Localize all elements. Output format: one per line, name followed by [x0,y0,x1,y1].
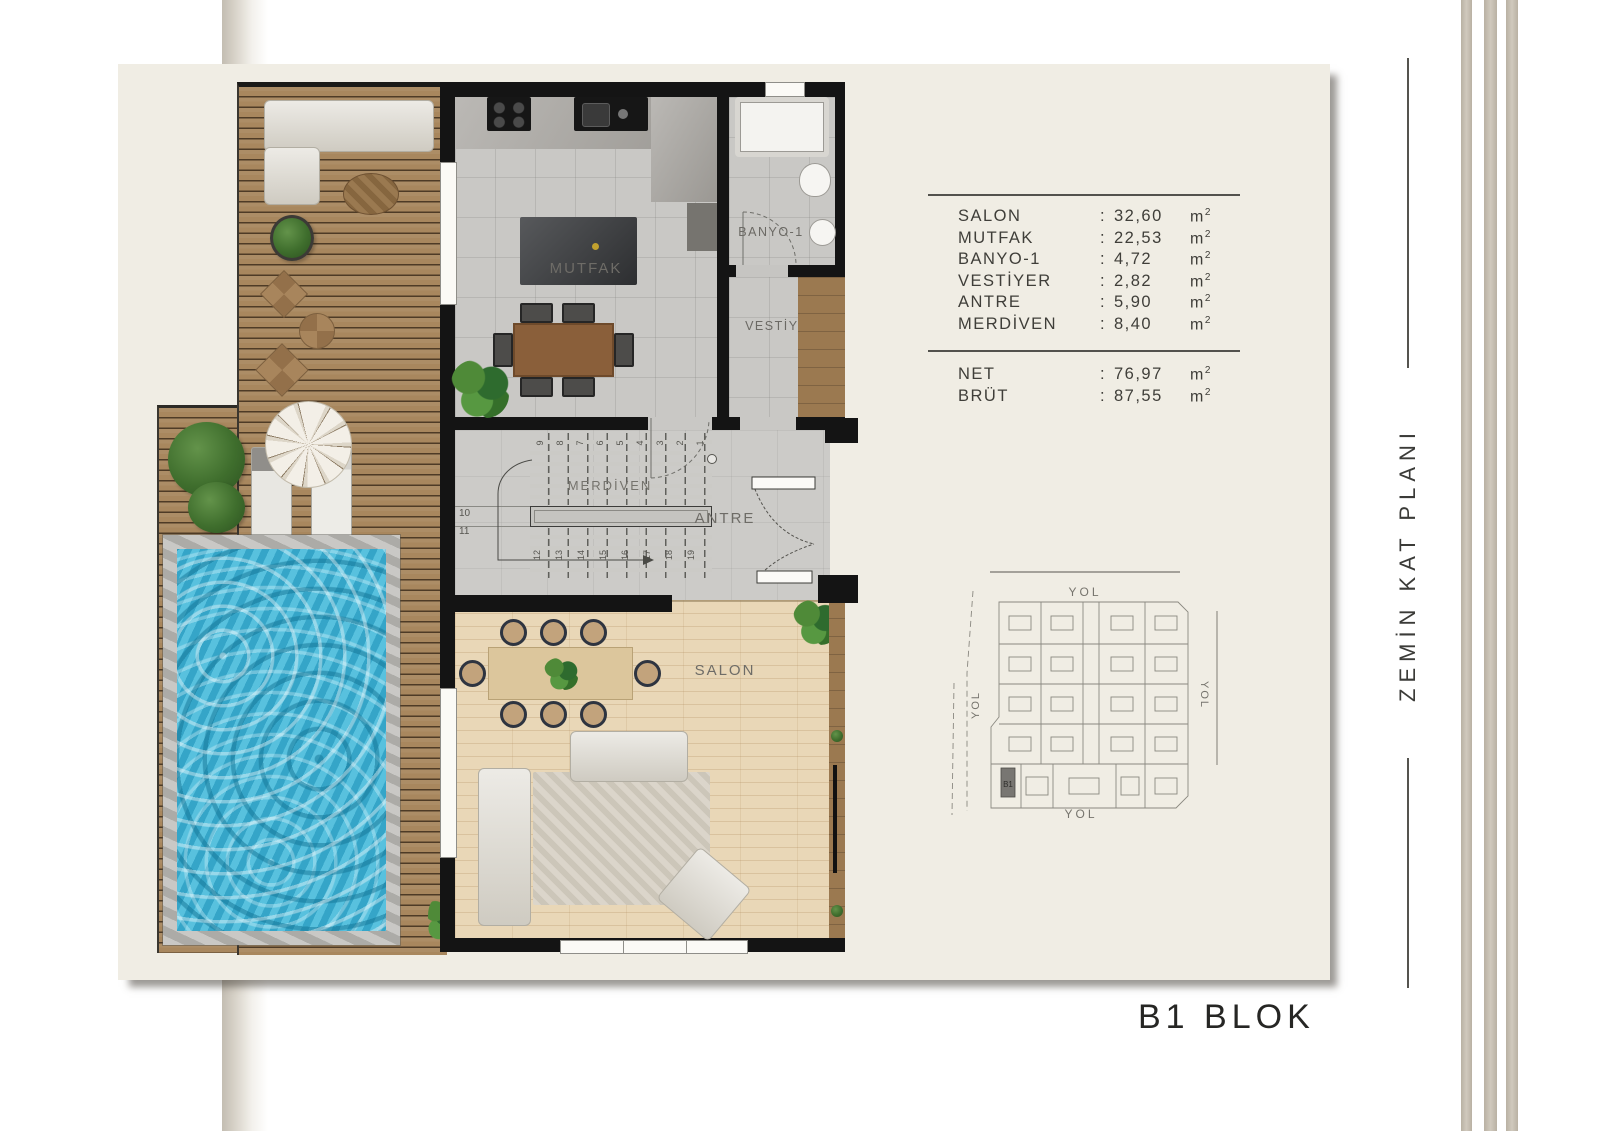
site-boundary [991,602,1188,808]
schedule-row: MUTFAK:22,53m2 [928,229,1240,251]
total-name: NET [928,365,1100,384]
road-dashed [952,683,954,815]
schedule-total-row: NET:76,97m2 [928,365,1240,387]
schedule-total-row: BRÜT:87,55m2 [928,387,1240,409]
room-name: VESTİYER [928,272,1100,291]
room-name: MUTFAK [928,229,1100,248]
schedule-rows: SALON:32,60m2 MUTFAK:22,53m2 BANYO-1:4,7… [928,196,1240,350]
pool-water [177,549,386,931]
room-area: 32,60 [1114,207,1190,226]
room-name: BANYO-1 [928,250,1100,269]
total-name: BRÜT [928,387,1100,406]
total-area: 76,97 [1114,365,1190,384]
plan-panel: MUTFAK BANYO-1 VESTİYER [118,64,1330,980]
total-area: 87,55 [1114,387,1190,406]
floor-plan-sheet: ZEMİN KAT PLANI B1 BLOK [0,0,1600,1131]
round-pouf [299,313,335,349]
side-rule-bottom [1407,758,1409,988]
entry-door-leaf [757,571,812,583]
schedule-row: SALON:32,60m2 [928,207,1240,229]
decor-band-1 [1461,0,1472,1131]
pouf [260,270,308,318]
unit: m2 [1190,207,1212,226]
unit: m2 [1190,365,1212,384]
door-opening [740,417,796,430]
unit: m2 [1190,229,1212,248]
door-opening [648,417,712,430]
outdoor-sofa-arm [264,147,320,205]
road-label-top: YOL [1068,585,1101,599]
unit: m2 [1190,250,1212,269]
door-opening [736,265,788,277]
parasol [265,401,352,488]
house-outline: MUTFAK BANYO-1 VESTİYER [440,82,845,952]
decor-band-3 [1506,0,1518,1131]
stair-newel [708,455,717,464]
area-schedule: SALON:32,60m2 MUTFAK:22,53m2 BANYO-1:4,7… [928,194,1240,408]
stair-direction-line [498,460,643,560]
room-area: 2,82 [1114,272,1190,291]
pouf [255,343,309,397]
decor-band-2 [1484,0,1497,1131]
block-title: B1 BLOK [1138,998,1315,1037]
entry-door-leaf [752,477,815,489]
room-name: SALON [928,207,1100,226]
outdoor-sofa [264,100,434,152]
room-area: 4,72 [1114,250,1190,269]
road-label-bottom: YOL [1064,807,1097,821]
side-rule-top [1407,58,1409,368]
schedule-row: ANTRE:5,90m2 [928,293,1240,315]
schedule-totals: NET:76,97m2 BRÜT:87,55m2 [928,352,1240,408]
room-area: 8,40 [1114,315,1190,334]
entry-door-arc [753,484,814,544]
unit: m2 [1190,387,1212,406]
unit: m2 [1190,272,1212,291]
unit: m2 [1190,293,1212,312]
outdoor-table [343,173,399,215]
room-area: 5,90 [1114,293,1190,312]
page-title: ZEMİN KAT PLANI [1392,408,1424,720]
road-label-left: YOL [970,691,982,719]
garden-bush [188,482,245,533]
plan-symbols-overlay [440,82,845,952]
door-swing-arc [743,212,796,265]
b1-label: B1 [1003,780,1013,789]
schedule-row: MERDİVEN:8,40m2 [928,315,1240,337]
potted-plant [270,215,314,261]
room-name: ANTRE [928,293,1100,312]
site-key-plan: B1 YOL YOL YOL YOL [933,553,1223,825]
unit: m2 [1190,315,1212,334]
room-area: 22,53 [1114,229,1190,248]
swimming-pool [163,535,400,945]
road-label-right: YOL [1198,681,1210,709]
schedule-row: VESTİYER:2,82m2 [928,272,1240,294]
room-name: MERDİVEN [928,315,1100,334]
schedule-row: BANYO-1:4,72m2 [928,250,1240,272]
site-lots [1009,616,1177,795]
stair-arrow [643,555,654,565]
